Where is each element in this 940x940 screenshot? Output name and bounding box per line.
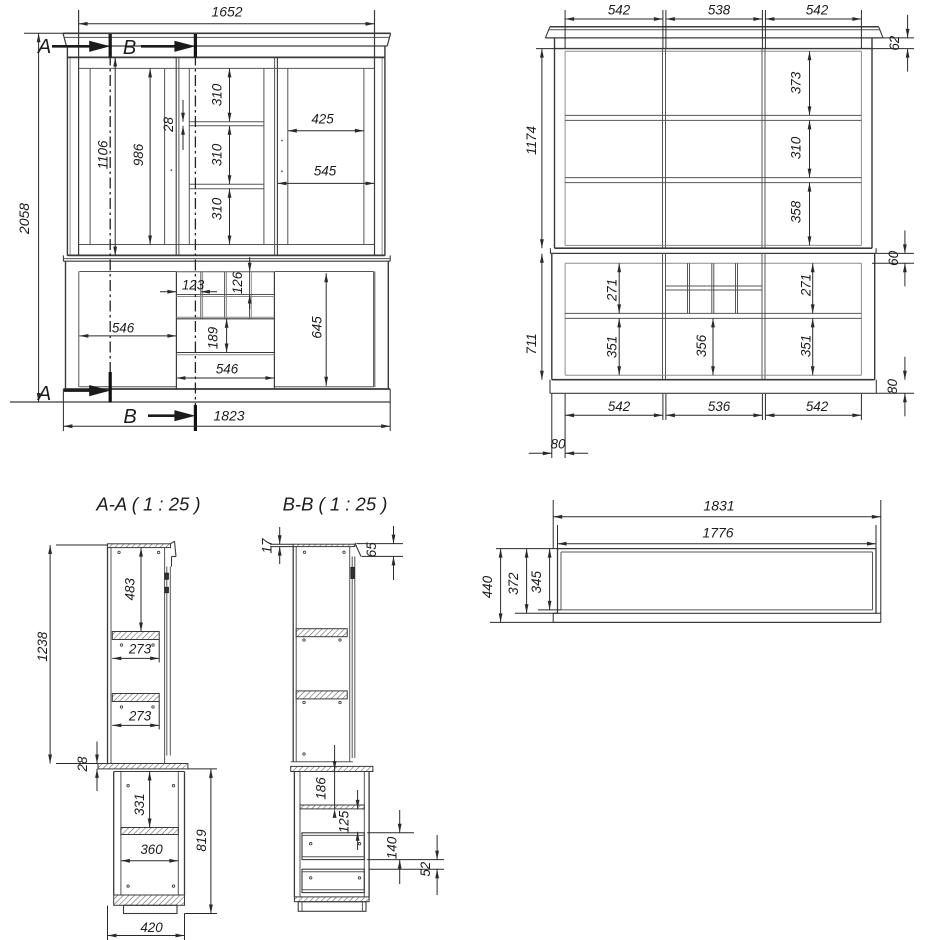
svg-text:189: 189 [206,326,221,349]
svg-text:546: 546 [112,321,135,336]
svg-text:65: 65 [364,542,379,557]
svg-text:711: 711 [524,333,539,354]
svg-text:310: 310 [789,136,804,159]
svg-text:331: 331 [132,793,147,815]
svg-text:A-A ( 1 : 25 ): A-A ( 1 : 25 ) [95,494,200,515]
svg-text:80: 80 [885,379,900,394]
svg-text:1831: 1831 [703,498,734,514]
svg-text:60: 60 [886,250,901,265]
svg-text:1823: 1823 [213,408,244,424]
svg-text:351: 351 [605,336,620,358]
svg-text:A: A [37,383,51,405]
svg-text:986: 986 [131,143,146,166]
svg-text:425: 425 [311,111,334,126]
svg-text:A: A [37,36,51,58]
svg-text:538: 538 [708,3,731,18]
svg-text:271: 271 [605,279,620,302]
svg-text:310: 310 [210,143,225,166]
svg-text:62: 62 [887,35,902,50]
svg-text:546: 546 [216,362,239,377]
svg-text:1776: 1776 [702,525,733,541]
svg-text:420: 420 [140,920,163,935]
svg-text:542: 542 [806,3,829,18]
svg-text:351: 351 [799,335,814,357]
svg-text:345: 345 [529,570,544,593]
svg-text:52: 52 [418,861,433,876]
svg-text:80: 80 [551,437,566,452]
svg-text:645: 645 [310,316,325,339]
svg-text:358: 358 [789,200,804,223]
svg-text:B: B [123,37,136,59]
svg-text:310: 310 [210,197,225,220]
svg-text:372: 372 [506,572,521,595]
svg-text:186: 186 [314,777,329,800]
svg-text:B-B ( 1 : 25 ): B-B ( 1 : 25 ) [283,494,388,515]
svg-text:819: 819 [194,829,209,852]
svg-text:545: 545 [314,164,337,179]
svg-text:373: 373 [789,71,804,94]
svg-text:271: 271 [799,274,814,297]
svg-text:28: 28 [161,117,176,133]
svg-text:125: 125 [337,810,352,833]
svg-text:123: 123 [182,277,205,292]
svg-text:356: 356 [694,334,709,357]
svg-text:1106: 1106 [96,140,111,169]
svg-text:536: 536 [708,399,731,414]
svg-text:483: 483 [123,578,138,601]
svg-text:140: 140 [385,836,400,859]
svg-text:2058: 2058 [16,203,32,235]
svg-text:360: 360 [140,842,163,857]
svg-text:1652: 1652 [211,4,242,20]
svg-text:542: 542 [608,3,631,18]
svg-text:273: 273 [128,709,152,724]
svg-text:310: 310 [210,83,225,106]
svg-text:28: 28 [75,756,90,772]
svg-text:542: 542 [608,399,631,414]
svg-text:542: 542 [806,399,829,414]
svg-text:17: 17 [260,538,275,553]
svg-text:273: 273 [128,642,152,657]
svg-text:126: 126 [230,271,245,294]
svg-text:1174: 1174 [524,126,539,155]
svg-text:B: B [123,406,136,428]
svg-text:1238: 1238 [35,631,50,661]
svg-text:440: 440 [480,575,495,598]
